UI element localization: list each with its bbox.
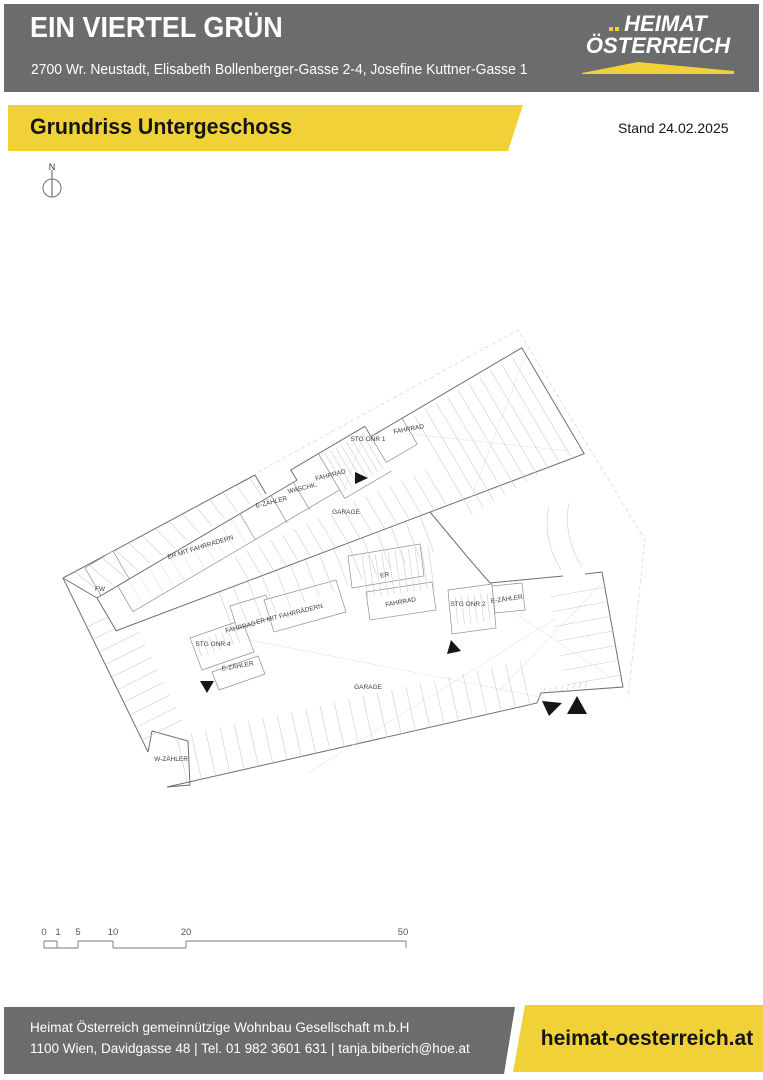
plan-room-label: STG ONR 4 [195, 641, 230, 648]
stall-line [210, 500, 225, 519]
stall-line [196, 507, 212, 526]
stall-line [136, 707, 176, 727]
footer-website-block: heimat-oesterreich.at [501, 1005, 763, 1072]
stall-line [183, 514, 200, 533]
stall-line [377, 693, 387, 738]
stall-line [463, 674, 473, 719]
stall-line [105, 645, 145, 665]
stall-line [130, 695, 170, 715]
stall-line [558, 631, 613, 641]
stall-line [156, 529, 175, 549]
scale-number: 10 [108, 927, 119, 938]
scale-number: 20 [181, 927, 192, 938]
arrow-icon-ramp-down [542, 701, 562, 716]
stall-line [406, 686, 416, 731]
stall-line [111, 657, 151, 677]
stall-line [334, 702, 344, 747]
stall-line [277, 715, 287, 760]
stall-line [550, 587, 605, 597]
stall-line [420, 683, 430, 728]
stall-line [237, 485, 250, 504]
top-wing-outline [91, 337, 584, 704]
stall-line [363, 696, 373, 741]
plan-room-label: GARAGE [332, 509, 360, 516]
stall-line [428, 546, 434, 588]
stall-line [142, 720, 182, 740]
stall-line [349, 699, 359, 744]
arrow-icon-stg2 [447, 640, 461, 654]
stall-line [566, 675, 621, 685]
stall-line [169, 521, 187, 540]
plan-room-label: W-ZÄHLER [154, 755, 188, 763]
stall-line [291, 712, 301, 757]
stall-line [219, 592, 233, 629]
room-er-mit-fahrraedern-lower [264, 580, 346, 632]
stall-line [223, 492, 237, 511]
stall-line [118, 670, 158, 690]
stall-line [553, 602, 608, 612]
stall-line [391, 690, 401, 735]
stall-line [220, 728, 230, 773]
scale-bar-numbers: 015102050 [41, 927, 408, 938]
plan-room-label: GARAGE [354, 684, 382, 691]
scale-bar: 015102050 [41, 927, 408, 948]
footer-company: Heimat Österreich gemeinnützige Wohnbau … [30, 1020, 409, 1035]
plan-room-label: STG ONR 2 [450, 601, 485, 608]
stall-line [420, 516, 434, 553]
stall-line [234, 724, 244, 769]
arrow-icon-ramp-up [567, 696, 587, 714]
stall-line [129, 543, 150, 563]
stall-line [579, 682, 581, 688]
stall-line [585, 681, 587, 687]
stall-line [124, 682, 164, 702]
stall-line [506, 664, 516, 709]
floorplan-svg: N [0, 0, 763, 1080]
footer-contact: 1100 Wien, Davidgasse 48 | Tel. 01 982 3… [30, 1041, 470, 1056]
stall-line [520, 661, 530, 706]
stall-line [555, 616, 610, 626]
stall-line [561, 646, 616, 656]
north-arrow-icon: N [43, 162, 61, 197]
stall-line [250, 478, 262, 497]
stall-line [248, 721, 258, 766]
arrow-icon-stg4 [200, 681, 214, 693]
driveway-ramp-curves [547, 503, 582, 570]
plan-room-label: STG ONR 1 [350, 436, 385, 443]
stall-line [306, 709, 316, 754]
scale-number: 0 [41, 927, 46, 938]
scale-number: 5 [75, 927, 80, 938]
plan-room-label: FW [95, 586, 106, 593]
stall-line [449, 677, 459, 722]
footer-bar: Heimat Österreich gemeinnützige Wohnbau … [4, 1007, 515, 1074]
north-label: N [49, 162, 56, 172]
flyer-page: EIN VIERTEL GRÜN 2700 Wr. Neustadt, Elis… [0, 0, 763, 1080]
scale-number: 1 [55, 927, 60, 938]
stall-line [555, 686, 557, 692]
stall-line [563, 660, 618, 670]
stall-line [99, 632, 139, 652]
stall-line [142, 536, 162, 556]
footer-website: heimat-oesterreich.at [531, 1005, 763, 1072]
stall-line [191, 734, 201, 779]
stall-line [263, 718, 273, 763]
stall-line [320, 705, 330, 750]
scale-number: 50 [398, 927, 409, 938]
stall-line [477, 671, 487, 716]
stall-line [561, 685, 563, 691]
stall-line [434, 680, 444, 725]
scale-bar-lines [44, 941, 406, 948]
top-wing-group [91, 337, 584, 704]
stall-line [206, 731, 216, 776]
right-block-top-wall [430, 512, 602, 583]
